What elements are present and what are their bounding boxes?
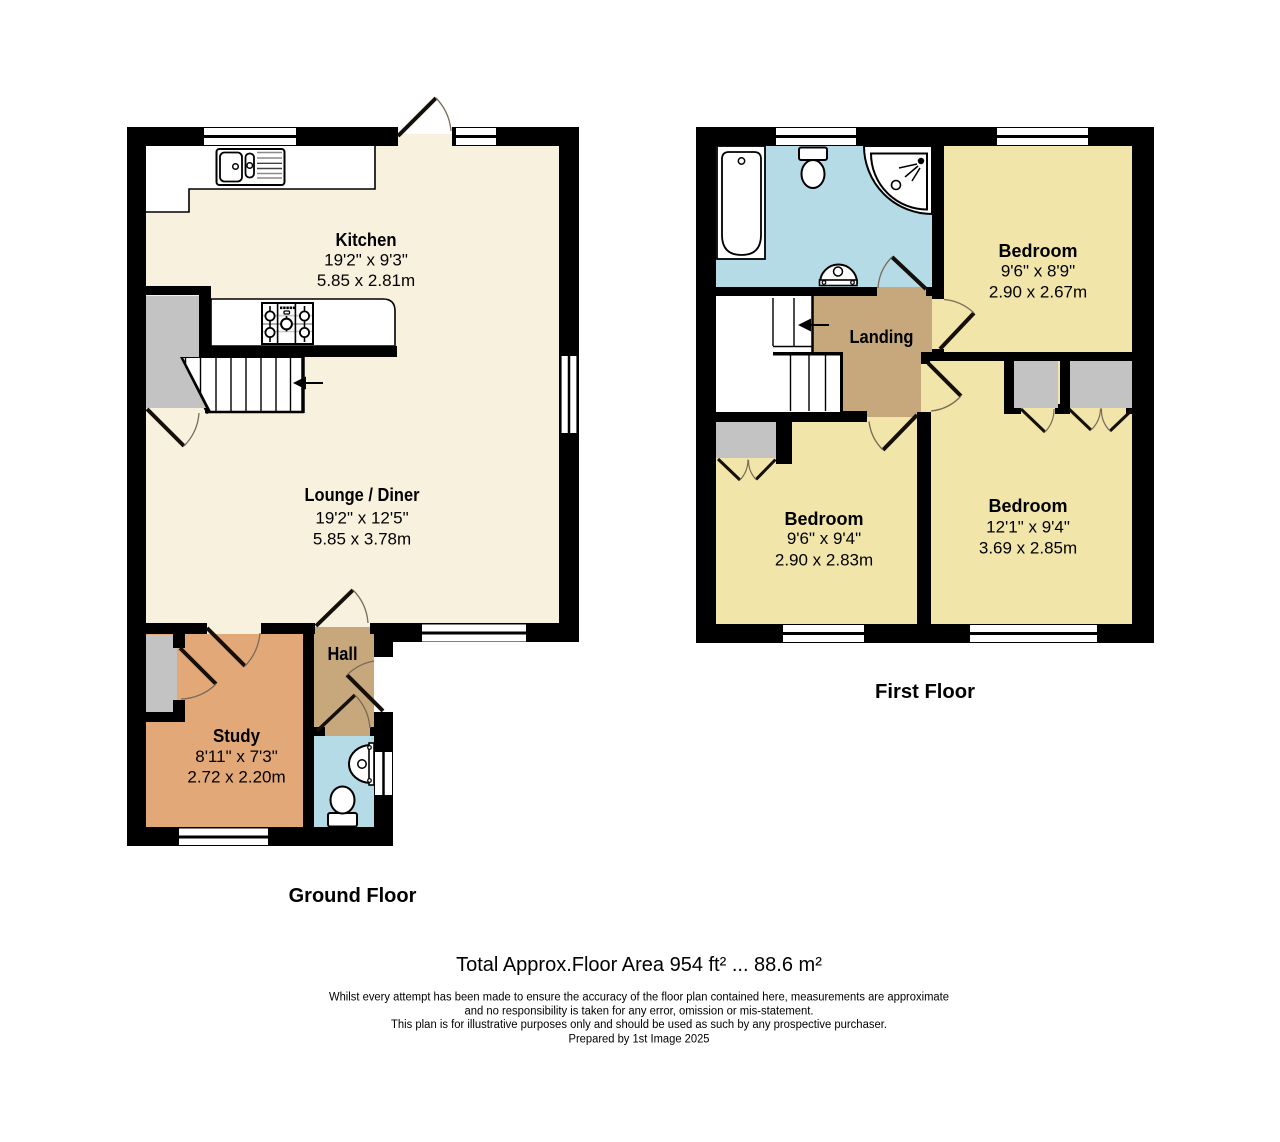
svg-text:5.85 x 3.78m: 5.85 x 3.78m — [313, 530, 411, 549]
svg-text:2.90 x 2.83m: 2.90 x 2.83m — [775, 550, 873, 569]
svg-text:First Floor: First Floor — [875, 681, 975, 703]
svg-text:9'6" x 8'9": 9'6" x 8'9" — [1001, 262, 1075, 281]
svg-text:Study: Study — [213, 726, 260, 746]
svg-text:5.85 x 2.81m: 5.85 x 2.81m — [317, 271, 415, 290]
svg-text:2.72 x 2.20m: 2.72 x 2.20m — [187, 768, 285, 787]
svg-text:Total Approx.Floor Area 954 ft: Total Approx.Floor Area 954 ft² ... 88.6… — [456, 954, 822, 976]
svg-text:8'11" x 7'3": 8'11" x 7'3" — [195, 747, 278, 766]
svg-text:9'6" x 9'4": 9'6" x 9'4" — [787, 529, 861, 548]
svg-text:2.90 x 2.67m: 2.90 x 2.67m — [989, 283, 1087, 302]
svg-text:12'1" x 9'4": 12'1" x 9'4" — [986, 518, 1070, 537]
svg-text:Kitchen: Kitchen — [336, 230, 397, 250]
svg-text:Prepared by 1st Image 2025: Prepared by 1st Image 2025 — [569, 1033, 710, 1045]
svg-text:3.69 x 2.85m: 3.69 x 2.85m — [979, 539, 1077, 558]
svg-text:19'2" x 9'3": 19'2" x 9'3" — [324, 251, 408, 270]
svg-text:Bedroom: Bedroom — [998, 241, 1077, 261]
svg-text:Bedroom: Bedroom — [988, 496, 1067, 516]
svg-text:Whilst every attempt has been: Whilst every attempt has been made to en… — [329, 992, 949, 1004]
svg-text:Ground Floor: Ground Floor — [289, 885, 417, 907]
svg-text:Bedroom: Bedroom — [784, 509, 863, 529]
svg-text:Landing: Landing — [850, 327, 914, 347]
svg-text:and no responsibility is taken: and no responsibility is taken for any e… — [465, 1005, 814, 1017]
svg-text:This plan is for illustrative: This plan is for illustrative purposes o… — [391, 1019, 887, 1031]
svg-text:Hall: Hall — [328, 644, 358, 664]
svg-text:Lounge / Diner: Lounge / Diner — [305, 485, 420, 505]
svg-text:19'2" x 12'5": 19'2" x 12'5" — [315, 509, 408, 528]
